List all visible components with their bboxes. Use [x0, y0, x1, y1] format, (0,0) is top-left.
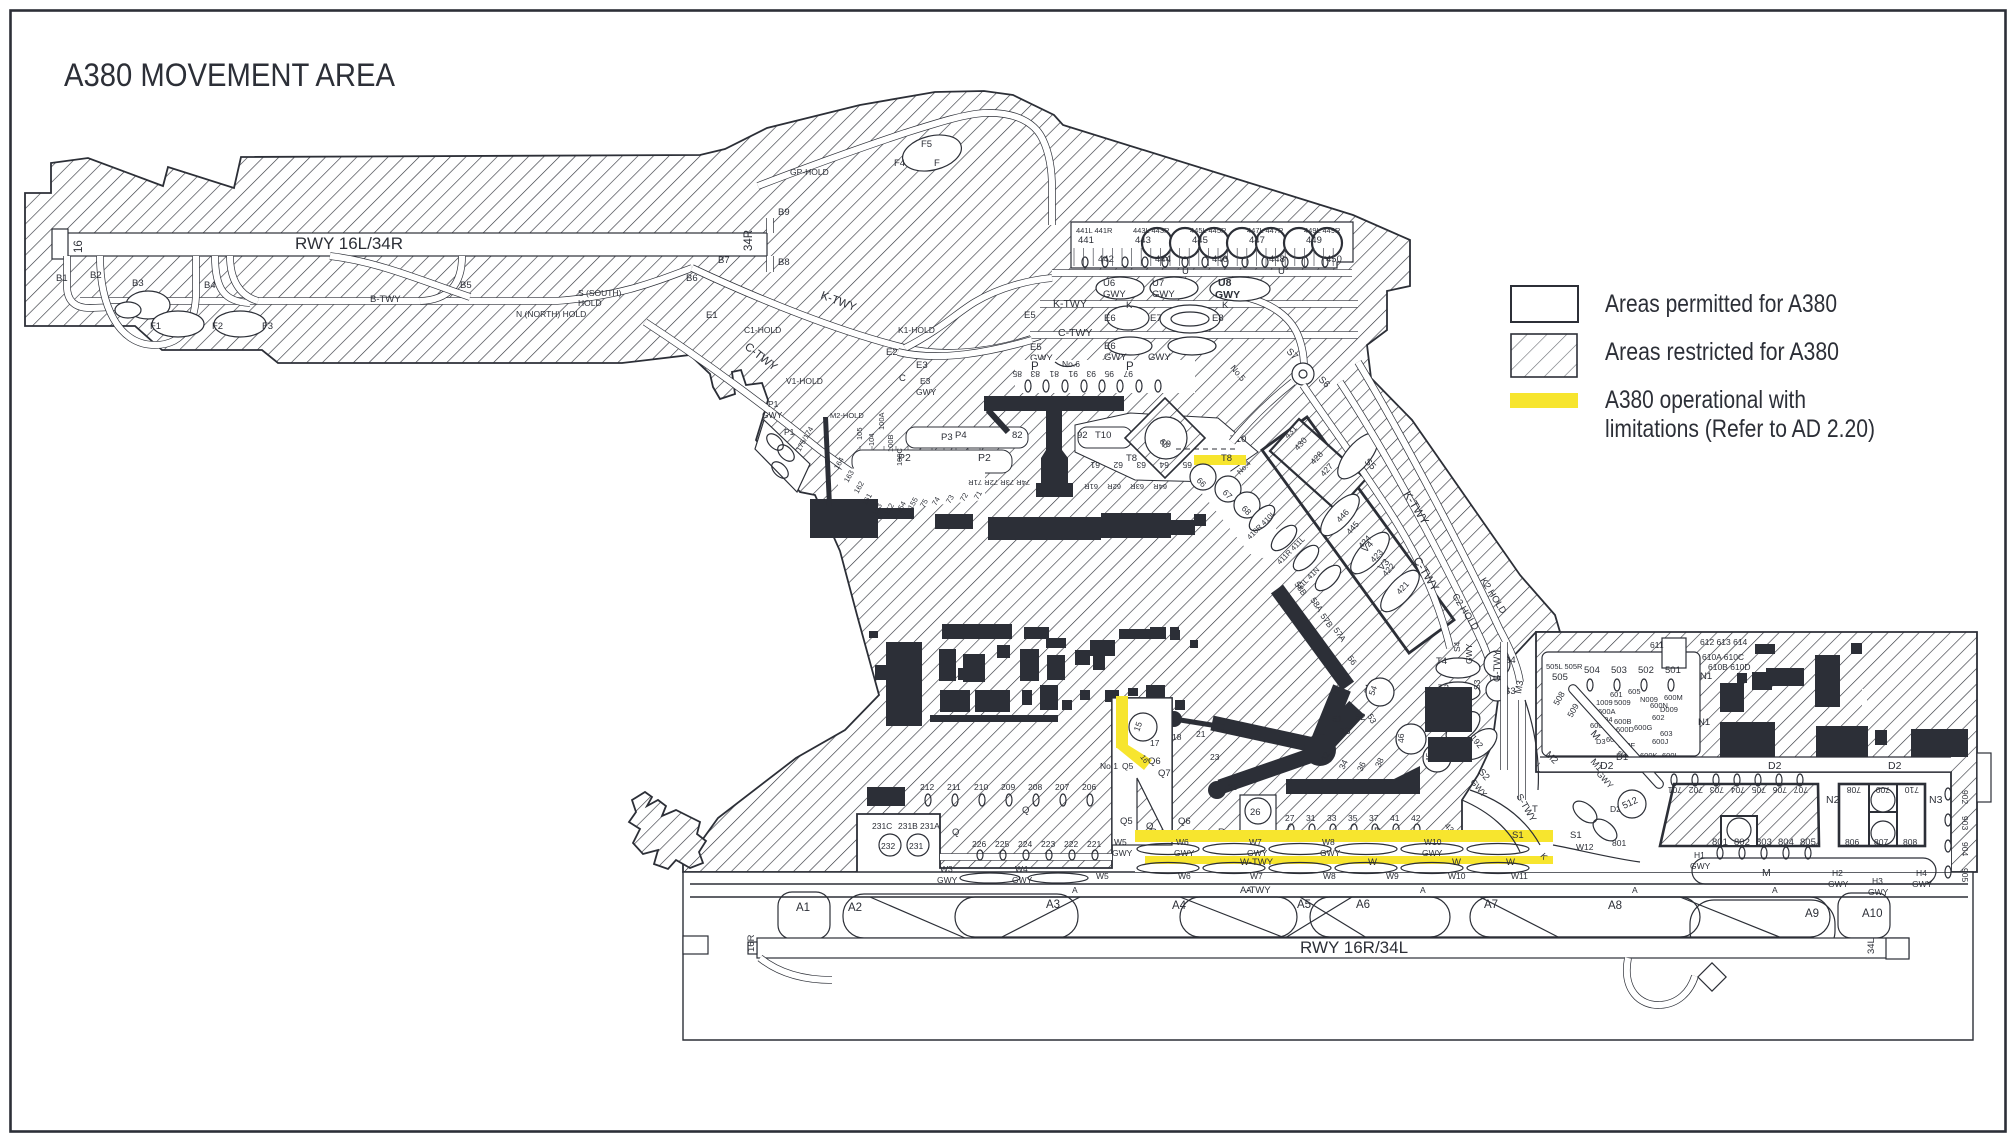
svg-text:A1: A1: [796, 902, 810, 914]
svg-text:703: 703: [1710, 785, 1724, 795]
svg-text:M: M: [1762, 867, 1771, 879]
svg-text:H1: H1: [1694, 850, 1705, 860]
svg-text:W9: W9: [1386, 871, 1399, 881]
svg-text:B7: B7: [718, 255, 730, 266]
svg-text:221: 221: [1087, 839, 1101, 849]
svg-text:449: 449: [1306, 235, 1322, 246]
svg-text:T10: T10: [1095, 430, 1111, 441]
svg-text:W4: W4: [1015, 864, 1028, 874]
svg-text:E3: E3: [920, 376, 931, 386]
svg-text:93: 93: [1086, 369, 1096, 379]
svg-text:801: 801: [1712, 837, 1728, 848]
svg-text:F5: F5: [921, 139, 932, 150]
svg-text:1009: 1009: [1596, 698, 1613, 707]
svg-text:K: K: [1126, 300, 1133, 311]
svg-text:GWY: GWY: [1152, 289, 1175, 300]
svg-text:P: P: [1031, 361, 1039, 373]
svg-text:A5: A5: [1297, 899, 1311, 911]
svg-text:71R: 71R: [968, 478, 982, 487]
svg-text:503: 503: [1611, 665, 1627, 676]
svg-text:F3: F3: [262, 321, 273, 332]
svg-text:600J: 600J: [1652, 737, 1669, 746]
svg-text:27: 27: [1285, 813, 1295, 823]
svg-text:A: A: [1632, 885, 1638, 895]
svg-text:707: 707: [1794, 785, 1808, 795]
svg-text:C-TWY: C-TWY: [1058, 327, 1092, 339]
svg-text:65: 65: [1182, 460, 1192, 470]
svg-text:RWY 16R/34L: RWY 16R/34L: [1300, 938, 1408, 957]
svg-text:447L 447R: 447L 447R: [1247, 226, 1284, 235]
svg-text:226: 226: [972, 839, 986, 849]
svg-text:710: 710: [1905, 785, 1919, 795]
svg-text:S4: S4: [1452, 641, 1462, 652]
svg-text:64R: 64R: [1153, 482, 1167, 491]
svg-text:34L: 34L: [1866, 938, 1877, 954]
svg-text:37: 37: [1369, 813, 1379, 823]
svg-text:GWY: GWY: [1828, 879, 1849, 889]
svg-text:35: 35: [1348, 813, 1358, 823]
svg-text:M3: M3: [1513, 680, 1526, 695]
svg-text:64: 64: [1159, 460, 1169, 470]
svg-text:W: W: [1506, 857, 1515, 868]
svg-text:231B: 231B: [898, 821, 918, 831]
svg-text:Q7: Q7: [1158, 768, 1171, 779]
svg-text:A6: A6: [1356, 899, 1370, 911]
svg-text:N2: N2: [1826, 794, 1840, 806]
svg-text:A2: A2: [848, 902, 862, 914]
svg-text:C: C: [899, 373, 906, 384]
svg-text:F1: F1: [150, 321, 161, 332]
svg-text:U: U: [1278, 266, 1285, 277]
svg-text:GWY: GWY: [1320, 848, 1341, 858]
svg-text:210: 210: [974, 782, 988, 792]
svg-text:B9: B9: [778, 207, 790, 218]
svg-text:W7: W7: [1250, 871, 1263, 881]
svg-text:41: 41: [1390, 813, 1400, 823]
svg-text:441: 441: [1078, 235, 1094, 246]
svg-text:231: 231: [909, 841, 923, 851]
svg-text:A380 MOVEMENT AREA: A380 MOVEMENT AREA: [64, 57, 396, 93]
svg-text:100C: 100C: [895, 447, 904, 466]
svg-text:E5: E5: [1024, 310, 1036, 321]
svg-text:225: 225: [995, 839, 1009, 849]
svg-text:S1: S1: [1570, 830, 1582, 841]
svg-text:Q: Q: [1022, 805, 1029, 816]
svg-text:62: 62: [1113, 460, 1123, 470]
svg-text:A380 operational with: A380 operational with: [1605, 386, 1806, 414]
svg-text:A10: A10: [1862, 908, 1882, 920]
svg-text:A9: A9: [1805, 908, 1819, 920]
svg-text:K-TWY: K-TWY: [1053, 298, 1087, 310]
svg-text:GWY: GWY: [762, 410, 783, 420]
svg-text:T8: T8: [1221, 453, 1232, 464]
svg-text:211: 211: [947, 782, 961, 792]
svg-text:A8: A8: [1608, 900, 1622, 912]
svg-text:W8: W8: [1322, 837, 1335, 847]
svg-text:610A 610C: 610A 610C: [1702, 652, 1744, 662]
svg-text:No.6: No.6: [1062, 359, 1080, 369]
svg-text:95: 95: [1104, 369, 1114, 379]
svg-text:E3: E3: [916, 360, 928, 371]
svg-text:442: 442: [1098, 254, 1114, 265]
svg-text:207: 207: [1055, 782, 1069, 792]
svg-text:63: 63: [1136, 460, 1146, 470]
svg-text:S3: S3: [1472, 679, 1482, 690]
svg-text:51: 51: [1332, 714, 1343, 725]
svg-text:73R: 73R: [1000, 478, 1014, 487]
svg-text:W-TWY: W-TWY: [1240, 857, 1274, 868]
svg-text:GWY: GWY: [1103, 289, 1126, 300]
svg-text:17: 17: [1150, 738, 1160, 748]
svg-text:U8: U8: [1218, 277, 1232, 289]
svg-text:16: 16: [73, 240, 85, 253]
svg-text:231A: 231A: [920, 821, 940, 831]
svg-text:A: A: [1246, 885, 1252, 895]
svg-text:443: 443: [1135, 235, 1151, 246]
svg-text:N (NORTH) HOLD: N (NORTH) HOLD: [516, 309, 586, 319]
svg-text:704: 704: [1731, 785, 1745, 795]
svg-text:26: 26: [1250, 807, 1261, 818]
svg-text:No.1: No.1: [1100, 761, 1118, 771]
svg-text:W6: W6: [1176, 837, 1189, 847]
svg-text:13: 13: [1340, 726, 1351, 737]
svg-text:K1-HOLD: K1-HOLD: [898, 325, 935, 335]
svg-text:223: 223: [1041, 839, 1055, 849]
svg-text:441L 441R: 441L 441R: [1076, 226, 1113, 235]
svg-text:803: 803: [1756, 837, 1772, 848]
svg-text:16R: 16R: [746, 934, 757, 952]
svg-text:42: 42: [1411, 813, 1421, 823]
svg-text:100B: 100B: [886, 434, 895, 452]
svg-text:212: 212: [920, 782, 934, 792]
svg-text:A4: A4: [1172, 900, 1187, 912]
svg-text:W6: W6: [1178, 871, 1191, 881]
svg-text:702: 702: [1689, 785, 1703, 795]
svg-text:H2: H2: [1832, 868, 1843, 878]
svg-text:RWY 16L/34R: RWY 16L/34R: [295, 234, 403, 253]
svg-text:Q5: Q5: [1120, 816, 1133, 827]
svg-text:P3: P3: [941, 432, 953, 443]
svg-text:801: 801: [1612, 838, 1626, 848]
svg-text:GWY: GWY: [916, 387, 937, 397]
svg-text:W3: W3: [940, 864, 953, 874]
svg-text:501: 501: [1665, 665, 1681, 676]
svg-text:E7: E7: [1150, 313, 1162, 324]
svg-text:B1: B1: [56, 273, 68, 284]
svg-text:W5: W5: [1096, 871, 1109, 881]
svg-text:N1: N1: [1698, 717, 1710, 728]
svg-text:F4: F4: [894, 158, 905, 169]
svg-text:W: W: [1368, 857, 1377, 868]
svg-text:105: 105: [855, 427, 864, 440]
svg-text:602: 602: [1652, 713, 1665, 722]
svg-text:504: 504: [1584, 665, 1600, 676]
svg-text:A: A: [1772, 885, 1778, 895]
svg-text:62R: 62R: [1107, 482, 1121, 491]
svg-text:P2: P2: [978, 452, 991, 464]
svg-text:104: 104: [867, 433, 876, 446]
svg-text:33: 33: [1327, 813, 1337, 823]
svg-text:802: 802: [1734, 837, 1750, 848]
svg-text:E1: E1: [706, 310, 718, 321]
svg-text:904: 904: [1960, 842, 1970, 856]
svg-text:72R: 72R: [984, 478, 998, 487]
svg-text:GWY: GWY: [1868, 887, 1889, 897]
svg-text:706: 706: [1773, 785, 1787, 795]
svg-text:709: 709: [1876, 785, 1890, 795]
svg-text:18: 18: [1172, 732, 1182, 742]
svg-text:B6: B6: [686, 273, 698, 284]
svg-text:445: 445: [1192, 235, 1208, 246]
svg-text:61R: 61R: [1084, 482, 1098, 491]
svg-text:209: 209: [1001, 782, 1015, 792]
svg-text:902: 902: [1960, 790, 1970, 804]
svg-text:M2-HOLD: M2-HOLD: [830, 411, 864, 420]
svg-text:T: T: [1532, 804, 1538, 815]
svg-text:81: 81: [1049, 369, 1059, 379]
svg-text:Areas permitted for A380: Areas permitted for A380: [1605, 290, 1837, 318]
svg-text:610B 610D: 610B 610D: [1708, 662, 1751, 672]
svg-text:limitations (Refer to AD 2.20): limitations (Refer to AD 2.20): [1605, 415, 1875, 443]
svg-text:G-TWY: G-TWY: [1492, 650, 1503, 682]
svg-text:31: 31: [1306, 813, 1316, 823]
svg-text:S1: S1: [1512, 830, 1524, 841]
svg-text:B4: B4: [204, 280, 216, 291]
svg-text:P1: P1: [784, 427, 795, 437]
svg-text:25: 25: [1228, 782, 1238, 792]
svg-text:46: 46: [1396, 733, 1406, 743]
svg-text:85: 85: [1012, 369, 1022, 379]
svg-text:W8: W8: [1323, 871, 1336, 881]
svg-text:GWY: GWY: [1912, 879, 1933, 889]
svg-text:U6: U6: [1103, 278, 1115, 289]
svg-text:807: 807: [1874, 837, 1888, 847]
svg-text:E2: E2: [886, 347, 898, 358]
svg-text:449L 449R: 449L 449R: [1304, 226, 1341, 235]
svg-text:74R: 74R: [1016, 478, 1030, 487]
svg-text:505: 505: [1552, 672, 1568, 683]
svg-text:903: 903: [1960, 816, 1970, 830]
svg-text:806: 806: [1845, 837, 1859, 847]
svg-text:T4: T4: [1436, 656, 1447, 667]
svg-text:52: 52: [1355, 712, 1366, 723]
svg-text:222: 222: [1064, 839, 1078, 849]
svg-text:C1-HOLD: C1-HOLD: [744, 325, 781, 335]
svg-text:H3: H3: [1872, 876, 1883, 886]
svg-text:P4: P4: [955, 430, 967, 441]
svg-text:H4: H4: [1916, 868, 1927, 878]
svg-text:P: P: [1126, 361, 1134, 373]
svg-text:D1: D1: [1616, 752, 1628, 763]
svg-text:82: 82: [1012, 430, 1023, 441]
svg-text:B-TWY: B-TWY: [370, 294, 401, 305]
svg-text:905: 905: [1960, 868, 1970, 882]
svg-text:808: 808: [1903, 837, 1917, 847]
svg-text:701: 701: [1668, 785, 1682, 795]
svg-text:W5: W5: [1114, 837, 1127, 847]
svg-text:600G: 600G: [1634, 723, 1653, 732]
svg-text:612 613 614: 612 613 614: [1700, 637, 1748, 647]
svg-text:63R: 63R: [1130, 482, 1144, 491]
svg-text:446: 446: [1212, 254, 1228, 265]
svg-text:232: 232: [881, 841, 895, 851]
svg-text:N3: N3: [1929, 794, 1943, 806]
svg-text:GP-HOLD: GP-HOLD: [790, 167, 829, 177]
svg-text:B2: B2: [90, 270, 102, 281]
svg-text:P1: P1: [768, 399, 779, 409]
svg-text:445L 445R: 445L 445R: [1190, 226, 1227, 235]
svg-text:Areas restricted for A380: Areas restricted for A380: [1605, 338, 1839, 366]
svg-text:B8: B8: [778, 257, 790, 268]
svg-text:D2: D2: [1888, 760, 1902, 772]
svg-text:705: 705: [1752, 785, 1766, 795]
svg-text:92: 92: [1077, 430, 1088, 441]
svg-text:A-TWY: A-TWY: [1240, 885, 1271, 896]
svg-text:W: W: [1452, 857, 1461, 868]
svg-text:Q5: Q5: [1122, 761, 1134, 771]
svg-text:E6: E6: [1104, 341, 1116, 352]
svg-text:GWY: GWY: [1422, 848, 1443, 858]
svg-text:D2: D2: [1768, 760, 1782, 772]
svg-text:231C: 231C: [872, 821, 892, 831]
svg-text:W7: W7: [1249, 837, 1262, 847]
svg-text:S (SOUTH): S (SOUTH): [578, 288, 622, 298]
svg-text:GWY: GWY: [1174, 848, 1195, 858]
svg-text:21: 21: [1196, 729, 1206, 739]
svg-text:605: 605: [1628, 687, 1641, 696]
svg-text:U: U: [1182, 266, 1189, 277]
svg-text:502: 502: [1638, 665, 1654, 676]
svg-text:805: 805: [1800, 837, 1816, 848]
svg-text:N1: N1: [1700, 671, 1712, 682]
svg-text:B5: B5: [460, 280, 472, 291]
svg-text:206: 206: [1082, 782, 1096, 792]
svg-text:34R: 34R: [743, 230, 755, 251]
svg-text:91: 91: [1068, 369, 1078, 379]
svg-text:E8: E8: [1212, 313, 1224, 324]
svg-text:GWY: GWY: [1690, 861, 1711, 871]
svg-text:HOLD: HOLD: [578, 298, 602, 308]
svg-text:U7: U7: [1152, 278, 1164, 289]
svg-text:F2: F2: [212, 321, 223, 332]
svg-text:B3: B3: [132, 278, 144, 289]
svg-text:GWY: GWY: [1464, 643, 1474, 664]
svg-text:208: 208: [1028, 782, 1042, 792]
svg-text:W12: W12: [1576, 842, 1594, 852]
svg-text:W10: W10: [1424, 837, 1442, 847]
svg-text:Q: Q: [952, 827, 959, 838]
svg-text:804: 804: [1778, 837, 1794, 848]
svg-text:23: 23: [1210, 752, 1220, 762]
svg-text:224: 224: [1018, 839, 1032, 849]
svg-text:443L 443R: 443L 443R: [1133, 226, 1170, 235]
svg-text:611: 611: [1650, 640, 1664, 650]
svg-text:GWY: GWY: [1112, 848, 1133, 858]
svg-text:T9: T9: [1160, 439, 1171, 450]
svg-text:505L 505R: 505L 505R: [1546, 662, 1583, 671]
svg-text:E6: E6: [1104, 313, 1116, 324]
svg-text:W10: W10: [1448, 871, 1466, 881]
svg-text:447: 447: [1249, 235, 1265, 246]
svg-text:5009: 5009: [1614, 698, 1631, 707]
svg-text:V1-HOLD: V1-HOLD: [786, 376, 823, 386]
svg-text:61: 61: [1090, 460, 1100, 470]
svg-text:708: 708: [1847, 785, 1861, 795]
svg-text:A: A: [1072, 885, 1078, 895]
svg-text:W11: W11: [1511, 871, 1528, 881]
svg-text:Q6: Q6: [1178, 816, 1191, 827]
svg-text:K: K: [1222, 300, 1229, 311]
svg-text:100A: 100A: [877, 412, 886, 430]
svg-text:T8: T8: [1126, 453, 1137, 464]
svg-text:A: A: [1420, 885, 1426, 895]
svg-text:A3: A3: [1046, 899, 1060, 911]
svg-text:F: F: [934, 158, 940, 169]
